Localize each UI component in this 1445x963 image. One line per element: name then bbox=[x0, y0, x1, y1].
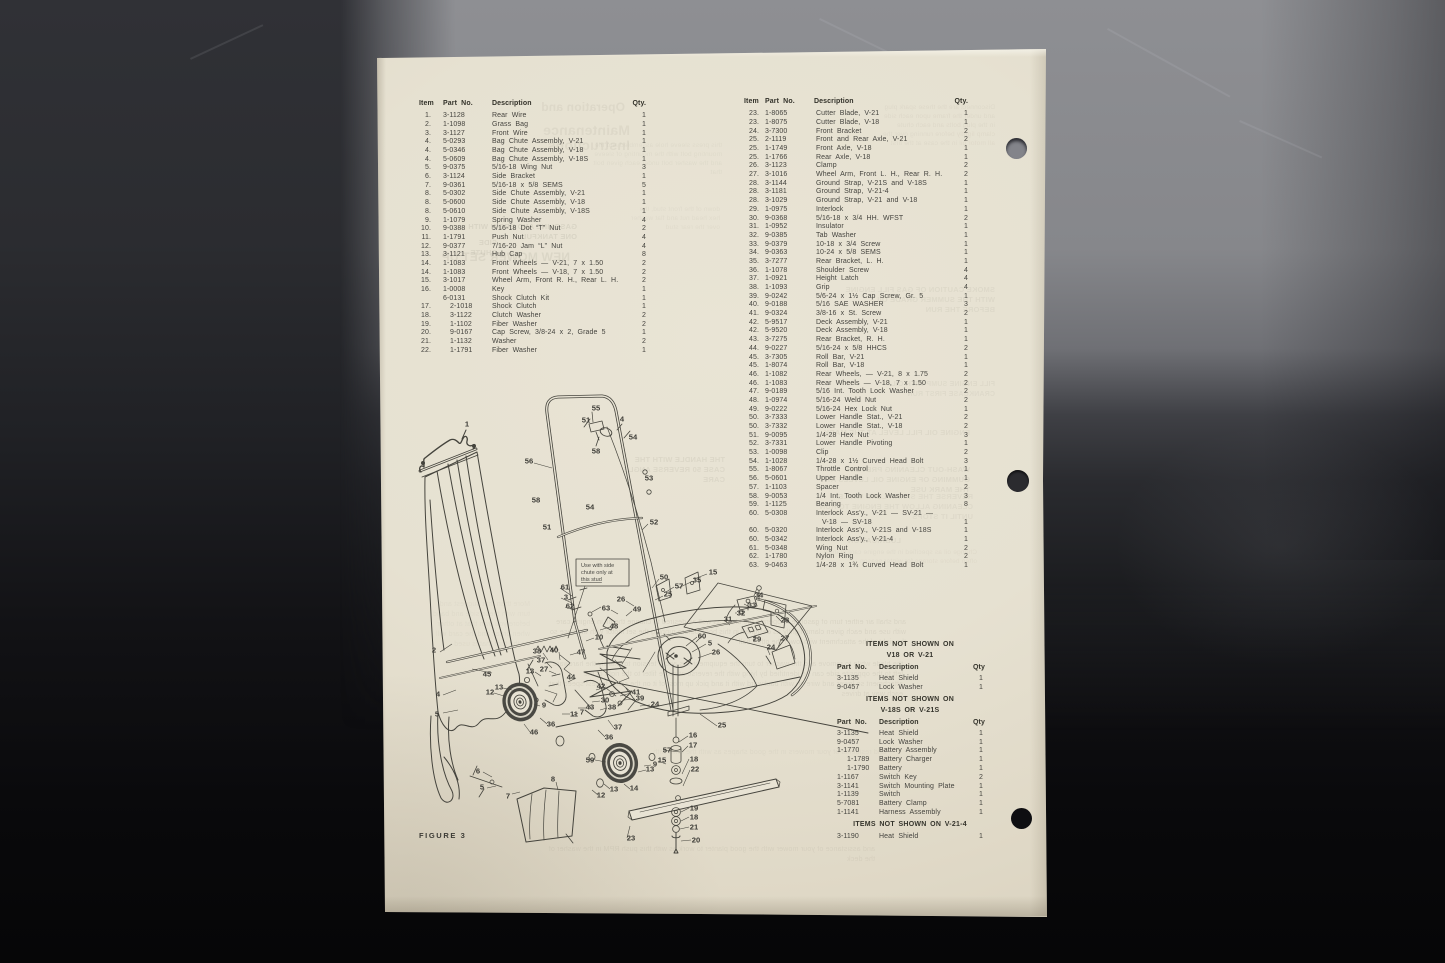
svg-text:37: 37 bbox=[614, 723, 622, 732]
svg-text:26: 26 bbox=[617, 595, 625, 604]
svg-text:9: 9 bbox=[653, 760, 657, 769]
svg-text:16: 16 bbox=[689, 731, 697, 740]
svg-text:11: 11 bbox=[570, 710, 579, 719]
svg-text:25: 25 bbox=[664, 590, 673, 599]
svg-text:56: 56 bbox=[525, 457, 533, 466]
svg-text:1: 1 bbox=[465, 420, 470, 429]
svg-text:21: 21 bbox=[690, 823, 699, 832]
svg-text:54: 54 bbox=[629, 433, 638, 442]
svg-text:19: 19 bbox=[690, 804, 698, 813]
svg-text:54: 54 bbox=[586, 503, 595, 512]
svg-text:51: 51 bbox=[543, 523, 552, 532]
svg-text:13: 13 bbox=[610, 785, 618, 794]
svg-text:55: 55 bbox=[592, 404, 601, 413]
svg-text:48: 48 bbox=[610, 622, 618, 631]
svg-text:37: 37 bbox=[537, 656, 545, 665]
svg-text:32: 32 bbox=[737, 609, 745, 618]
svg-text:7: 7 bbox=[580, 708, 584, 717]
svg-text:15: 15 bbox=[658, 756, 667, 765]
svg-text:63: 63 bbox=[602, 604, 610, 613]
svg-text:26: 26 bbox=[712, 648, 720, 657]
svg-text:61: 61 bbox=[561, 583, 570, 592]
svg-text:4: 4 bbox=[620, 415, 625, 424]
svg-text:51: 51 bbox=[582, 416, 591, 425]
svg-text:36: 36 bbox=[605, 733, 613, 742]
svg-text:24: 24 bbox=[651, 700, 660, 709]
svg-text:34: 34 bbox=[755, 591, 764, 600]
svg-text:9: 9 bbox=[542, 701, 546, 710]
svg-text:18: 18 bbox=[690, 813, 698, 822]
svg-text:47: 47 bbox=[577, 648, 585, 657]
svg-text:50: 50 bbox=[660, 573, 668, 582]
svg-text:this stud: this stud bbox=[581, 577, 602, 583]
svg-text:12: 12 bbox=[597, 791, 605, 800]
svg-text:60: 60 bbox=[698, 632, 706, 641]
svg-text:Use with side: Use with side bbox=[581, 563, 614, 569]
svg-text:40: 40 bbox=[550, 646, 558, 655]
svg-text:13: 13 bbox=[526, 667, 534, 676]
svg-text:15: 15 bbox=[709, 568, 718, 577]
svg-text:27: 27 bbox=[781, 634, 789, 643]
svg-text:4: 4 bbox=[436, 690, 441, 699]
svg-text:20: 20 bbox=[692, 836, 700, 845]
svg-text:58: 58 bbox=[592, 447, 600, 456]
svg-text:58: 58 bbox=[532, 496, 540, 505]
svg-text:28: 28 bbox=[781, 616, 789, 625]
svg-text:45: 45 bbox=[483, 670, 492, 679]
svg-text:22: 22 bbox=[691, 765, 699, 774]
svg-text:13: 13 bbox=[495, 683, 503, 692]
svg-text:38: 38 bbox=[608, 703, 616, 712]
svg-text:33: 33 bbox=[748, 601, 756, 610]
svg-text:17: 17 bbox=[689, 741, 697, 750]
svg-text:43: 43 bbox=[586, 703, 594, 712]
svg-text:52: 52 bbox=[650, 518, 658, 527]
svg-text:5: 5 bbox=[708, 639, 713, 648]
svg-text:5: 5 bbox=[480, 783, 485, 792]
svg-text:38: 38 bbox=[533, 647, 541, 656]
svg-text:27: 27 bbox=[540, 665, 548, 674]
svg-text:62: 62 bbox=[566, 602, 574, 611]
svg-text:59: 59 bbox=[586, 756, 594, 765]
svg-text:chute only at: chute only at bbox=[581, 570, 613, 576]
svg-text:8: 8 bbox=[551, 775, 555, 784]
svg-text:53: 53 bbox=[645, 474, 653, 483]
svg-text:39: 39 bbox=[636, 694, 644, 703]
svg-text:49: 49 bbox=[633, 605, 641, 614]
svg-text:36: 36 bbox=[547, 720, 555, 729]
svg-text:2: 2 bbox=[432, 646, 436, 655]
svg-text:35: 35 bbox=[693, 576, 702, 585]
svg-text:29: 29 bbox=[753, 635, 761, 644]
svg-text:6: 6 bbox=[476, 767, 480, 776]
svg-text:46: 46 bbox=[530, 728, 538, 737]
svg-text:18: 18 bbox=[690, 755, 698, 764]
svg-text:31: 31 bbox=[724, 615, 733, 624]
svg-text:25: 25 bbox=[718, 721, 727, 730]
svg-text:14: 14 bbox=[630, 784, 639, 793]
svg-text:12: 12 bbox=[486, 688, 494, 697]
svg-text:10: 10 bbox=[595, 633, 603, 642]
svg-text:7: 7 bbox=[506, 792, 510, 801]
